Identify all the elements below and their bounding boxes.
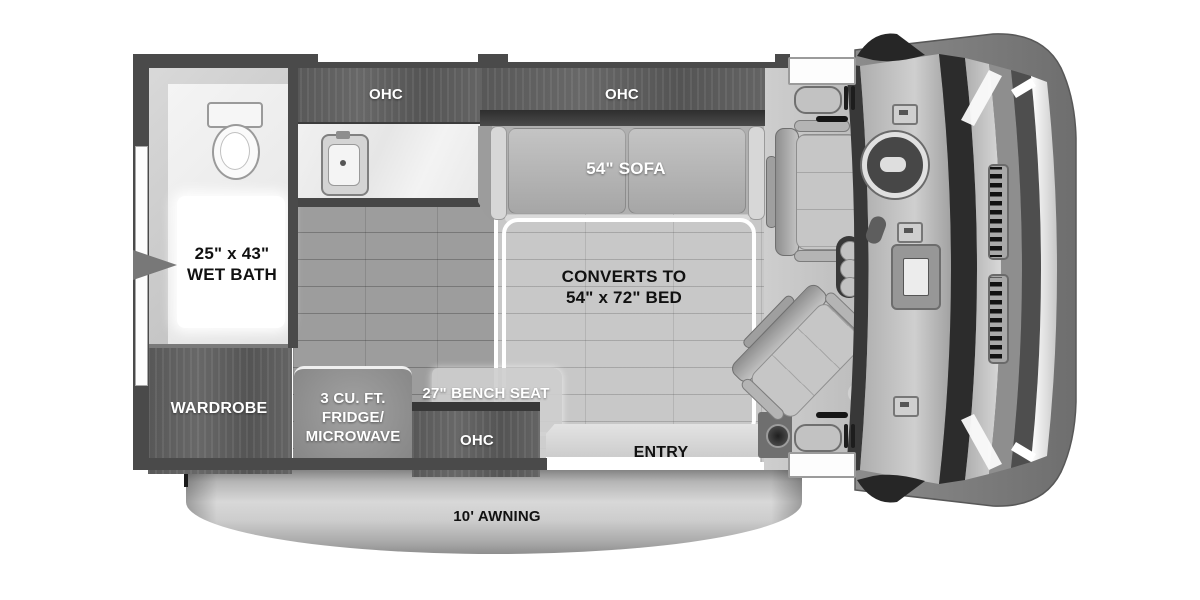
dash-vent-3 <box>893 396 919 417</box>
bed-label-line1: CONVERTS TO <box>562 266 687 287</box>
kitchen-ohc-label: OHC <box>369 86 403 104</box>
wet-bath-label-line2: WET BATH <box>187 264 277 285</box>
bench-ohc-label: OHC <box>460 432 494 450</box>
passenger-door-armrest <box>794 424 842 452</box>
driver-door-handle-icon <box>816 116 848 122</box>
passenger-door-speaker-slat-2 <box>851 424 855 448</box>
entry-speaker-icon <box>766 424 790 448</box>
fridge-label-line3: MICROWAVE <box>306 428 401 447</box>
wet-bath-label: 25" x 43" WET BATH <box>187 243 277 286</box>
fridge-label: 3 CU. FT. FRIDGE/ MICROWAVE <box>306 390 401 446</box>
driver-door-armrest <box>794 86 842 114</box>
bottom-wall <box>133 458 547 470</box>
fridge-label-line1: 3 CU. FT. <box>306 390 401 409</box>
top-window-right <box>508 54 775 62</box>
grille-vent-bottom-slats <box>990 277 1007 361</box>
awning-label: 10' AWNING <box>453 508 541 526</box>
sofa-armrest-right <box>748 126 765 220</box>
center-screen <box>903 258 929 296</box>
top-window-left <box>318 54 478 62</box>
bed-label: CONVERTS TO 54" x 72" BED <box>562 266 687 309</box>
passenger-door-speaker-slat-1 <box>844 424 848 448</box>
center-stack <box>891 244 941 310</box>
driver-door-speaker-slat-2 <box>851 86 855 110</box>
steering-hub <box>880 157 906 172</box>
wet-bath-label-line1: 25" x 43" <box>187 243 277 264</box>
steering-wheel-icon <box>862 132 928 198</box>
sofa-ohc-lip <box>480 110 765 126</box>
sofa-armrest-left <box>490 126 507 220</box>
kitchen-counter-edge <box>293 198 480 207</box>
sink-drain-icon <box>340 160 346 166</box>
bath-kitchen-wall <box>288 64 298 348</box>
floorplan-canvas: 10' AWNING 25" x 43" WET BATH OHC OHC 54… <box>0 0 1200 600</box>
sofa-label: 54" SOFA <box>586 159 666 179</box>
sofa-ohc-label: OHC <box>605 86 639 104</box>
dash-vent-2 <box>897 222 923 243</box>
entry-label: ENTRY <box>634 443 689 462</box>
bench-seat-label: 27" BENCH SEAT <box>422 385 549 403</box>
sink-faucet-icon <box>336 131 350 139</box>
driver-door-speaker-slat-1 <box>844 86 848 110</box>
bed-label-line2: 54" x 72" BED <box>562 287 687 308</box>
passenger-door-handle-icon <box>816 412 848 418</box>
grille-vent-top-slats <box>990 167 1007 257</box>
driver-door-window <box>788 57 856 85</box>
fridge-label-line2: FRIDGE/ <box>306 409 401 428</box>
wardrobe-label: WARDROBE <box>171 399 268 418</box>
passenger-door-window <box>788 452 856 478</box>
toilet-seat-icon <box>220 132 250 170</box>
van-front <box>843 28 1083 512</box>
dash-vent-1 <box>892 104 918 125</box>
